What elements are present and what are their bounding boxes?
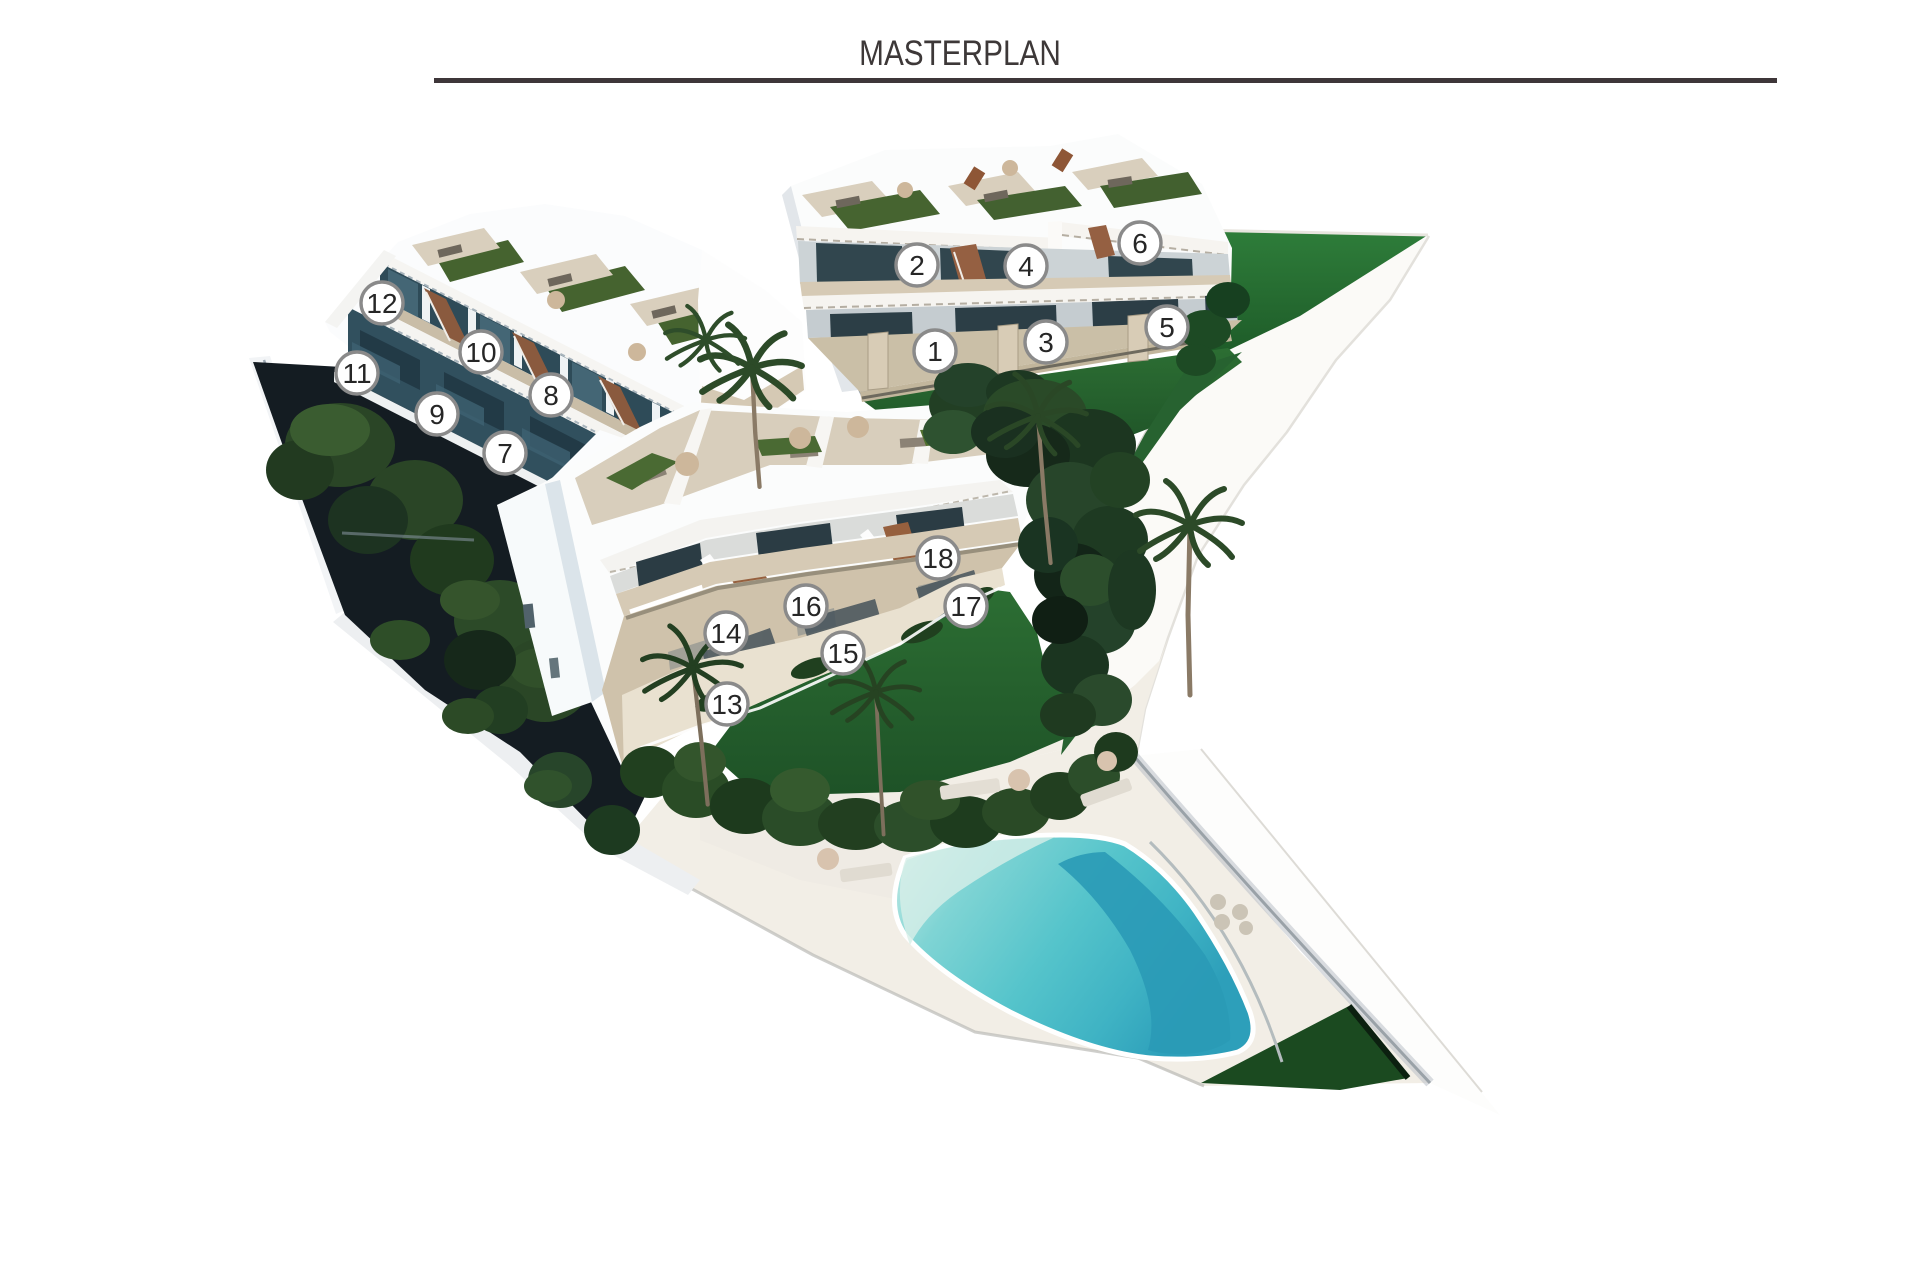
- svg-text:7: 7: [497, 438, 513, 469]
- svg-text:6: 6: [1132, 228, 1148, 259]
- svg-text:14: 14: [710, 618, 741, 649]
- svg-text:10: 10: [465, 337, 496, 368]
- svg-text:3: 3: [1038, 327, 1054, 358]
- svg-text:15: 15: [827, 638, 858, 669]
- svg-text:8: 8: [543, 380, 559, 411]
- svg-text:9: 9: [429, 399, 445, 430]
- svg-text:4: 4: [1018, 251, 1034, 282]
- svg-text:2: 2: [909, 250, 925, 281]
- svg-text:16: 16: [790, 591, 821, 622]
- svg-text:18: 18: [922, 543, 953, 574]
- svg-text:13: 13: [711, 689, 742, 720]
- svg-text:12: 12: [366, 288, 397, 319]
- svg-text:17: 17: [950, 591, 981, 622]
- svg-text:5: 5: [1159, 312, 1175, 343]
- svg-text:1: 1: [927, 336, 943, 367]
- svg-text:11: 11: [342, 358, 371, 389]
